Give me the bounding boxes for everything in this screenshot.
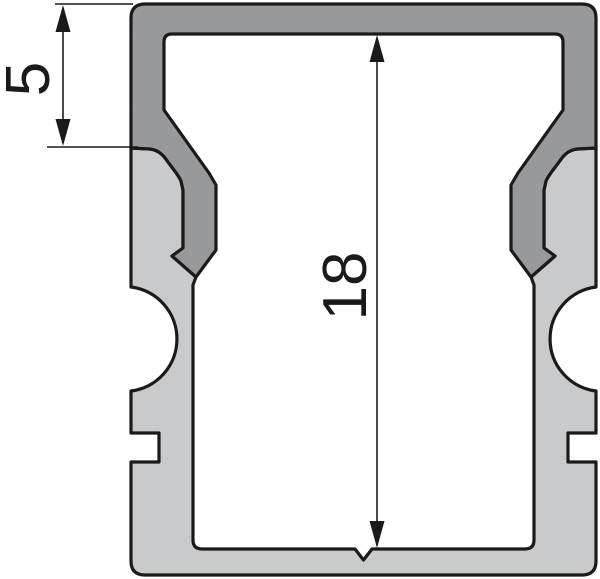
dimension-label-5: 5 bbox=[0, 62, 63, 96]
dimension-cover-height: 5 bbox=[0, 4, 138, 147]
dimension-inner-height: 18 bbox=[311, 35, 385, 548]
cover-shape bbox=[131, 4, 596, 277]
arrow-down-icon bbox=[370, 521, 385, 548]
arrow-down-icon bbox=[56, 119, 71, 146]
profile-cross-section-drawing: 5 18 bbox=[0, 0, 600, 579]
drawing-canvas: 5 18 bbox=[0, 0, 600, 579]
arrow-up-icon bbox=[56, 5, 71, 32]
arrow-up-icon bbox=[370, 35, 385, 62]
dimension-label-18: 18 bbox=[311, 252, 380, 321]
